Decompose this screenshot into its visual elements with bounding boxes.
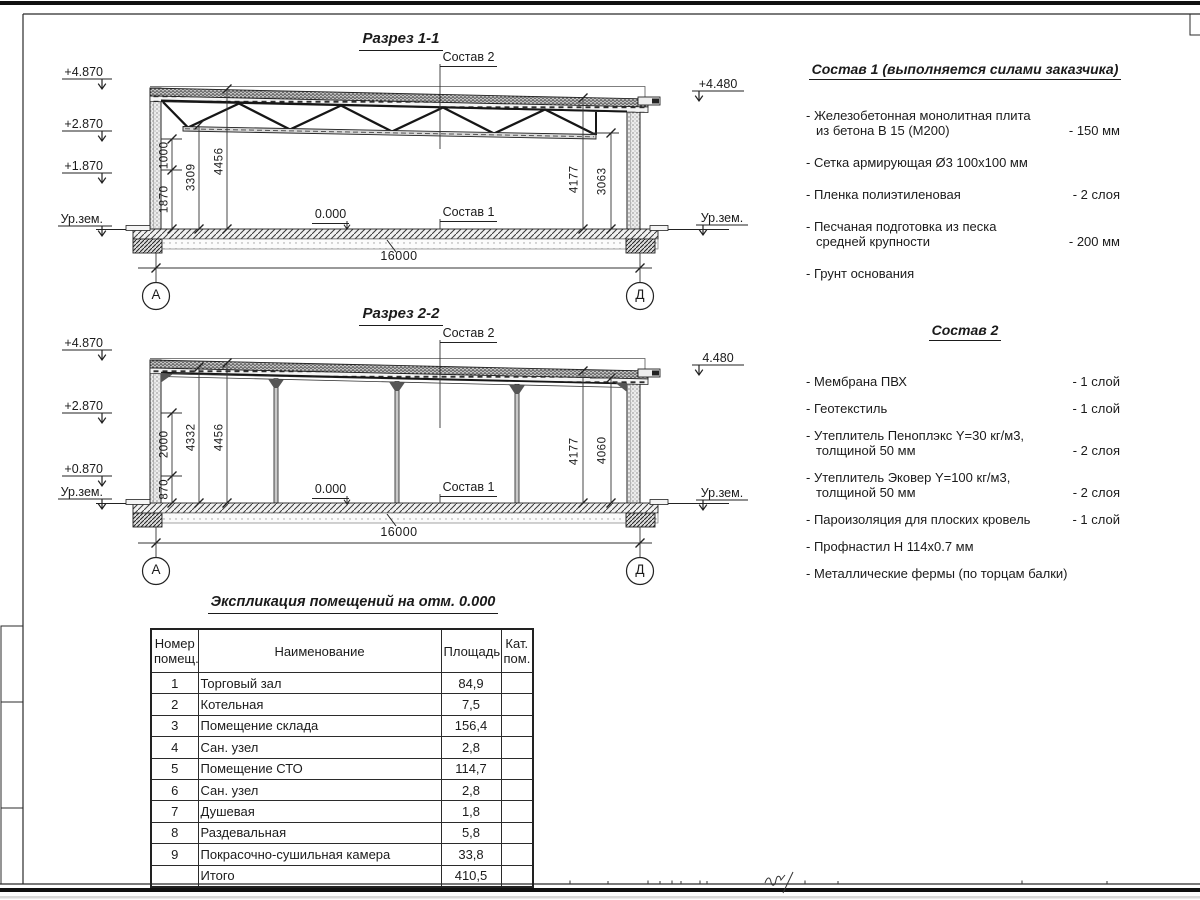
dimension-label: 4332	[186, 415, 199, 459]
material-text: - Железобетонная монолитная плита из бет…	[806, 108, 1031, 138]
column-header-name: Наименование	[198, 629, 441, 673]
room-name: Сан. узел	[198, 737, 441, 758]
column-header-category: Кат. пом.	[501, 629, 533, 673]
room-category	[501, 779, 533, 800]
room-area: 114,7	[441, 758, 501, 779]
material-item: - Утеплитель Эковер Y=100 кг/м3, толщино…	[806, 470, 1120, 500]
composition-2-callout: Состав 2	[440, 51, 497, 67]
dimension-label: 1870	[159, 177, 172, 221]
section-1-title-text: Разрез 1-1	[359, 31, 442, 51]
room-number: 3	[151, 715, 198, 736]
composition-1-heading: Состав 1 (выполняется силами заказчика)	[800, 62, 1130, 80]
material-item: - Пленка полиэтиленовая- 2 слоя	[806, 187, 1120, 202]
zero-level-label: 0.000	[312, 208, 349, 224]
drawing-sheet: Разрез 1-1 +4.870 +2.870 +1.870 Ур.зем. …	[0, 0, 1200, 900]
room-number: 8	[151, 822, 198, 843]
room-schedule-table: Номер помещ. Наименование Площадь Кат. п…	[150, 628, 534, 888]
schedule-row: 5Помещение СТО114,7	[151, 758, 533, 779]
span-dimension-label: 16000	[369, 526, 429, 540]
room-number	[151, 865, 198, 887]
elevation-mark: +2.870	[57, 118, 103, 132]
schedule-title: Экспликация помещений на отм. 0.000	[153, 595, 553, 614]
dimension-label: 4177	[569, 429, 582, 473]
room-name: Итого	[198, 865, 441, 887]
dimension-label: 4177	[569, 157, 582, 201]
dimension-label: 2000	[159, 422, 172, 466]
room-category	[501, 737, 533, 758]
schedule-header-row: Номер помещ. Наименование Площадь Кат. п…	[151, 629, 533, 673]
dimension-label: 4456	[214, 139, 227, 183]
room-name: Котельная	[198, 694, 441, 715]
room-category	[501, 673, 533, 694]
room-number: 9	[151, 844, 198, 865]
dimension-label: 3063	[597, 159, 610, 203]
material-value: - 1 слой	[1072, 512, 1120, 527]
composition-1-callout: Состав 1	[440, 481, 497, 497]
composition-2-callout: Состав 2	[440, 327, 497, 343]
room-category	[501, 801, 533, 822]
material-value: - 2 слоя	[1073, 443, 1120, 458]
elevation-mark: 4.480	[692, 352, 744, 366]
material-item: - Мембрана ПВХ- 1 слой	[806, 374, 1120, 389]
section-1-title: Разрез 1-1	[341, 31, 461, 51]
elevation-mark: +0.870	[57, 463, 103, 477]
room-name: Помещение склада	[198, 715, 441, 736]
material-value: - 200 мм	[1069, 234, 1120, 249]
schedule-row: 4Сан. узел2,8	[151, 737, 533, 758]
material-text: - Мембрана ПВХ	[806, 374, 907, 389]
ground-level-label: Ур.зем.	[696, 487, 748, 501]
elevation-mark: +4.870	[57, 337, 103, 351]
ground-level-label: Ур.зем.	[57, 213, 103, 227]
material-value: - 2 слоя	[1073, 187, 1120, 202]
material-item: - Профнастил Н 114х0.7 мм	[806, 539, 1120, 554]
material-value: - 150 мм	[1069, 123, 1120, 138]
material-value: - 1 слой	[1072, 401, 1120, 416]
material-text: - Утеплитель Эковер Y=100 кг/м3, толщино…	[806, 470, 1010, 500]
column-header-text: Наименование	[274, 644, 364, 659]
schedule-row: 9Покрасочно-сушильная камера33,8	[151, 844, 533, 865]
schedule-row: 3Помещение склада156,4	[151, 715, 533, 736]
material-text: - Пароизоляция для плоских кровель	[806, 512, 1030, 527]
zero-level-label: 0.000	[312, 483, 349, 499]
axis-marker-d: Д	[630, 563, 650, 578]
column-header-text: Номер помещ.	[154, 636, 198, 666]
ground-level-label: Ур.зем.	[57, 486, 103, 500]
dimension-label: 3309	[186, 155, 199, 199]
composition-1-list: - Железобетонная монолитная плита из бет…	[806, 108, 1120, 298]
schedule-title-text: Экспликация помещений на отм. 0.000	[208, 595, 499, 614]
room-area: 156,4	[441, 715, 501, 736]
ground-level-label: Ур.зем.	[696, 212, 748, 226]
span-dimension-label: 16000	[369, 250, 429, 264]
room-area: 2,8	[441, 779, 501, 800]
room-area: 84,9	[441, 673, 501, 694]
axis-marker-d: Д	[630, 288, 650, 303]
column-header-number: Номер помещ.	[151, 629, 198, 673]
room-name: Помещение СТО	[198, 758, 441, 779]
material-text: - Пленка полиэтиленовая	[806, 187, 961, 202]
schedule-row: 8Раздевальная5,8	[151, 822, 533, 843]
room-number: 5	[151, 758, 198, 779]
column-header-text: Площадь	[444, 644, 501, 659]
room-area: 5,8	[441, 822, 501, 843]
room-number: 7	[151, 801, 198, 822]
room-category	[501, 865, 533, 887]
room-area: 1,8	[441, 801, 501, 822]
material-item: - Металлические фермы (по торцам балки)	[806, 566, 1120, 581]
room-number: 2	[151, 694, 198, 715]
room-category	[501, 844, 533, 865]
room-category	[501, 758, 533, 779]
dimension-label: 870	[159, 467, 172, 511]
section-2-title: Разрез 2-2	[341, 306, 461, 326]
room-number: 4	[151, 737, 198, 758]
composition-2-heading: Состав 2	[800, 323, 1130, 341]
material-value: - 1 слой	[1072, 374, 1120, 389]
room-schedule: Номер помещ. Наименование Площадь Кат. п…	[150, 628, 534, 888]
room-name: Покрасочно-сушильная камера	[198, 844, 441, 865]
dimension-label: 1000	[159, 133, 172, 177]
room-category	[501, 822, 533, 843]
composition-2-heading-text: Состав 2	[929, 323, 1002, 341]
schedule-row: 7Душевая1,8	[151, 801, 533, 822]
column-header-text: Кат. пом.	[504, 636, 531, 666]
elevation-mark: +4.870	[57, 66, 103, 80]
room-category	[501, 694, 533, 715]
material-item: - Геотекстиль- 1 слой	[806, 401, 1120, 416]
schedule-row: 2Котельная7,5	[151, 694, 533, 715]
material-text: - Геотекстиль	[806, 401, 889, 416]
material-item: - Утеплитель Пеноплэкс Y=30 кг/м3, толщи…	[806, 428, 1120, 458]
material-item: - Сетка армирующая Ø3 100х100 мм	[806, 155, 1120, 170]
room-name: Торговый зал	[198, 673, 441, 694]
schedule-row: 1Торговый зал84,9	[151, 673, 533, 694]
elevation-mark: +4.480	[692, 78, 744, 92]
room-area: 33,8	[441, 844, 501, 865]
material-text: - Сетка армирующая Ø3 100х100 мм	[806, 155, 1028, 170]
room-name: Душевая	[198, 801, 441, 822]
section-2-title-text: Разрез 2-2	[359, 306, 442, 326]
room-area: 2,8	[441, 737, 501, 758]
material-value: - 2 слоя	[1073, 485, 1120, 500]
room-number: 6	[151, 779, 198, 800]
material-text: - Песчаная подготовка из песка средней к…	[806, 219, 996, 249]
room-area: 7,5	[441, 694, 501, 715]
material-item: - Пароизоляция для плоских кровель- 1 сл…	[806, 512, 1120, 527]
axis-marker-a: А	[146, 288, 166, 303]
room-category	[501, 715, 533, 736]
dimension-label: 4060	[597, 428, 610, 472]
axis-marker-a: А	[146, 563, 166, 578]
elevation-mark: +2.870	[57, 400, 103, 414]
material-text: - Утеплитель Пеноплэкс Y=30 кг/м3, толщи…	[806, 428, 1024, 458]
room-area: 410,5	[441, 865, 501, 887]
room-name: Раздевальная	[198, 822, 441, 843]
material-item: - Железобетонная монолитная плита из бет…	[806, 108, 1120, 138]
composition-1-callout: Состав 1	[440, 206, 497, 222]
column-header-area: Площадь	[441, 629, 501, 673]
material-text: - Профнастил Н 114х0.7 мм	[806, 539, 974, 554]
elevation-mark: +1.870	[57, 160, 103, 174]
material-item: - Песчаная подготовка из песка средней к…	[806, 219, 1120, 249]
schedule-row: Итого410,5	[151, 865, 533, 887]
room-name: Сан. узел	[198, 779, 441, 800]
room-number: 1	[151, 673, 198, 694]
composition-2-list: - Мембрана ПВХ- 1 слой- Геотекстиль- 1 с…	[806, 374, 1120, 593]
composition-1-heading-text: Состав 1 (выполняется силами заказчика)	[809, 62, 1122, 80]
dimension-label: 4456	[214, 415, 227, 459]
material-text: - Грунт основания	[806, 266, 914, 281]
schedule-row: 6Сан. узел2,8	[151, 779, 533, 800]
material-item: - Грунт основания	[806, 266, 1120, 281]
material-text: - Металлические фермы (по торцам балки)	[806, 566, 1067, 581]
